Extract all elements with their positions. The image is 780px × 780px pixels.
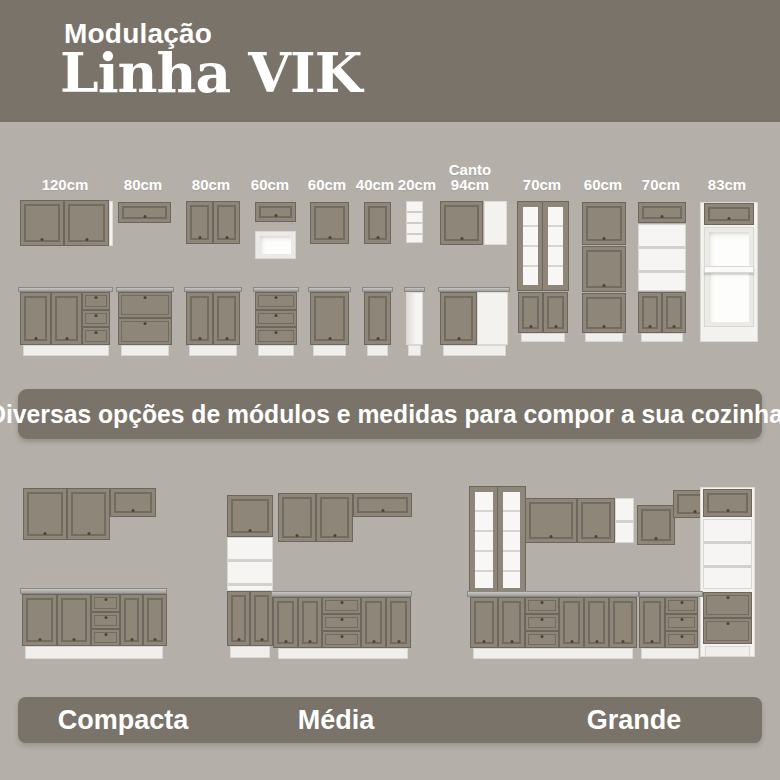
plinth <box>23 345 109 356</box>
cabinet-door <box>364 292 391 345</box>
plinth <box>443 345 506 356</box>
open-shelves <box>638 224 686 291</box>
plinth <box>189 345 237 356</box>
plinth <box>230 646 270 658</box>
drawer-front <box>525 614 559 631</box>
cabinet-door <box>278 493 316 542</box>
drawer-front <box>703 618 752 644</box>
cabinet-door <box>638 202 686 223</box>
plinth <box>473 648 633 659</box>
cabinet-door <box>577 498 615 543</box>
cabinet-door <box>227 495 273 537</box>
kitchen-size-labels-bar: Compacta Média Grande <box>18 697 762 743</box>
cabinet-door <box>20 200 64 246</box>
cabinet-door <box>704 203 754 225</box>
glass-door <box>470 487 498 593</box>
cabinet-door <box>23 488 67 540</box>
kitchen-size-grande: Grande <box>587 705 682 736</box>
cabinet-door <box>637 505 675 545</box>
cabinet-door <box>518 292 543 333</box>
cubby-shelves <box>406 201 423 243</box>
cabinet-door <box>353 493 412 517</box>
plinth <box>367 345 388 356</box>
side-panel <box>477 292 508 345</box>
module-size-label: 60cm <box>584 177 622 192</box>
module-size-label: 40cm <box>356 177 394 192</box>
cabinet-door <box>582 202 626 245</box>
cabinet-door <box>498 597 525 648</box>
tagline-banner: Diversas opções de módulos e medidas par… <box>18 389 762 439</box>
header: Modulação Linha VIK <box>0 0 780 122</box>
cabinet-door <box>64 200 109 246</box>
cabinet-door <box>310 202 349 244</box>
drawer-front <box>665 631 698 648</box>
cabinet-door <box>120 594 143 646</box>
plinth <box>521 333 565 342</box>
drawer-front <box>255 327 297 345</box>
open-base-niche <box>406 292 423 345</box>
cabinet-door <box>310 292 349 345</box>
plinth <box>278 648 408 659</box>
module-size-label: 80cm <box>124 177 162 192</box>
cabinet-door <box>703 489 752 517</box>
module-size-label: 60cm <box>251 177 289 192</box>
shelf <box>704 266 754 273</box>
drawer-front <box>703 592 752 618</box>
drawer-front <box>322 631 361 648</box>
cabinet-door <box>582 246 626 292</box>
cabinet-door <box>20 292 51 345</box>
drawer-front <box>118 318 172 345</box>
plinth <box>705 646 750 657</box>
module-size-label: 70cm <box>523 177 561 192</box>
cabinet-door <box>470 597 498 648</box>
drawer-front <box>322 614 361 631</box>
drawer-front <box>665 614 698 631</box>
plinth <box>641 648 699 659</box>
drawer-front <box>82 327 110 345</box>
plinth <box>25 646 163 659</box>
module-size-label: 120cm <box>42 177 89 192</box>
cabinet-door <box>51 292 82 345</box>
cabinet-door <box>361 597 386 648</box>
cabinet-door <box>298 597 322 648</box>
cabinet-door <box>662 292 686 333</box>
module-size-label: 20cm <box>398 177 436 192</box>
cabinet-door <box>543 292 568 333</box>
cabinet-door <box>559 597 584 648</box>
drawer-front <box>525 597 559 614</box>
drawer-front <box>91 629 120 646</box>
module-size-label: 80cm <box>192 177 230 192</box>
kitchen-size-media: Média <box>298 705 375 736</box>
drawer-front <box>82 292 110 310</box>
cabinet-door <box>639 597 665 648</box>
module-size-label: 70cm <box>642 177 680 192</box>
open-niche <box>255 231 296 259</box>
open-shelves <box>615 498 634 543</box>
cabinet-door <box>57 594 91 646</box>
side-panel <box>109 201 113 246</box>
cabinet-door <box>440 201 483 245</box>
drawer-front <box>665 597 698 614</box>
product-infographic: Modulação Linha VIK 120cm80cm80cm60cm60c… <box>0 0 780 780</box>
cabinet-door <box>525 498 577 543</box>
cabinet-door <box>638 292 662 333</box>
cabinet-door <box>22 594 57 646</box>
cabinet-door <box>186 201 213 244</box>
cabinet-door <box>582 293 626 333</box>
cabinet-door <box>440 292 477 345</box>
open-shelves <box>703 519 752 589</box>
cabinet-door <box>143 594 167 646</box>
drawer-front <box>118 292 172 318</box>
cabinet-door <box>250 591 273 646</box>
plinth <box>258 345 294 356</box>
cabinet-door <box>386 597 411 648</box>
cabinet-door <box>186 292 213 345</box>
tagline-text: Diversas opções de módulos e medidas par… <box>0 399 780 430</box>
plinth <box>313 345 346 356</box>
open-niche <box>704 227 754 327</box>
cabinet-door <box>364 202 391 244</box>
cabinet-door <box>609 597 637 648</box>
cabinet-door <box>273 597 298 648</box>
page-title: Linha VIK <box>60 40 362 105</box>
cabinet-door <box>584 597 609 648</box>
module-size-label: 60cm <box>308 177 346 192</box>
module-size-label: 83cm <box>708 177 746 192</box>
cabinet-door <box>227 591 250 646</box>
cabinet-door <box>316 493 353 542</box>
kitchen-size-compacta: Compacta <box>58 705 189 736</box>
cabinet-door <box>67 488 110 540</box>
drawer-front <box>322 597 361 614</box>
open-shelves <box>227 537 273 591</box>
drawer-front <box>91 612 120 629</box>
plinth <box>121 345 169 356</box>
plinth <box>585 333 623 342</box>
drawer-front <box>255 310 297 327</box>
cabinet-door <box>255 202 296 222</box>
glass-door <box>543 202 568 290</box>
glass-door <box>498 487 525 593</box>
drawer-front <box>255 292 297 310</box>
side-panel <box>484 201 507 245</box>
glass-door <box>518 202 543 290</box>
plinth <box>641 333 683 342</box>
plinth <box>408 345 421 356</box>
drawer-front <box>82 310 110 327</box>
cabinet-door <box>213 201 240 244</box>
cabinet-door <box>118 202 171 223</box>
cabinet-door <box>213 292 240 345</box>
module-size-label: Canto 94cm <box>442 162 498 192</box>
cabinet-door <box>110 488 156 517</box>
drawer-front <box>91 594 120 612</box>
drawer-front <box>525 631 559 648</box>
